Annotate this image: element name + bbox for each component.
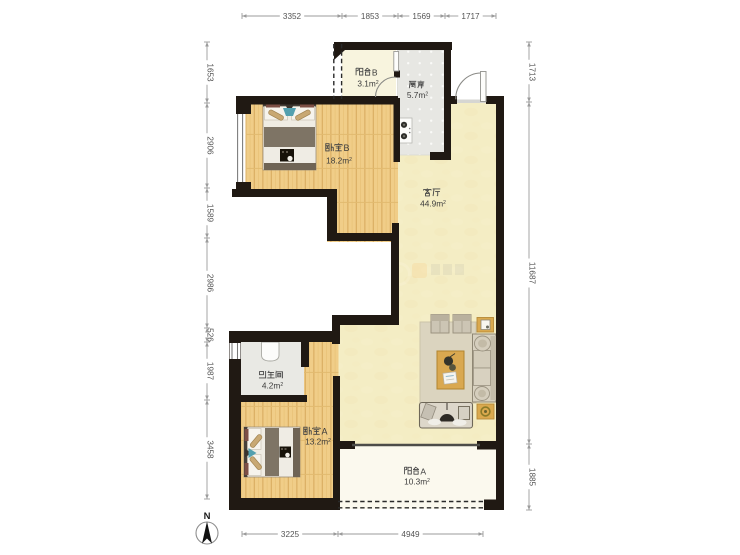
svg-text:13.2m2: 13.2m2 [305, 437, 331, 447]
svg-text:10.3m2: 10.3m2 [404, 477, 430, 487]
svg-text:3225: 3225 [281, 530, 300, 539]
svg-text:18.2m2: 18.2m2 [326, 156, 352, 166]
svg-text:3458: 3458 [205, 440, 214, 459]
svg-text:4.2m2: 4.2m2 [262, 381, 283, 391]
svg-text:44.9m2: 44.9m2 [420, 199, 446, 209]
svg-text:N: N [204, 511, 211, 522]
svg-text:1589: 1589 [205, 204, 214, 223]
svg-text:3352: 3352 [283, 12, 302, 21]
svg-text:11687: 11687 [527, 262, 536, 285]
svg-text:A: A [420, 466, 426, 476]
svg-text:1653: 1653 [205, 63, 214, 82]
svg-text:1713: 1713 [527, 63, 536, 82]
svg-text:2986: 2986 [205, 274, 214, 293]
svg-text:1569: 1569 [412, 12, 431, 21]
svg-text:A: A [322, 427, 328, 437]
svg-text:1885: 1885 [527, 468, 536, 487]
svg-text:B: B [344, 143, 350, 153]
svg-text:3.1m2: 3.1m2 [357, 79, 378, 89]
svg-text:1987: 1987 [205, 362, 214, 381]
svg-text:2906: 2906 [205, 136, 214, 155]
svg-text:1853: 1853 [361, 12, 380, 21]
svg-text:4949: 4949 [401, 530, 420, 539]
svg-text:5.7m2: 5.7m2 [407, 90, 428, 100]
svg-text:B: B [372, 67, 378, 77]
svg-text:1717: 1717 [461, 12, 480, 21]
